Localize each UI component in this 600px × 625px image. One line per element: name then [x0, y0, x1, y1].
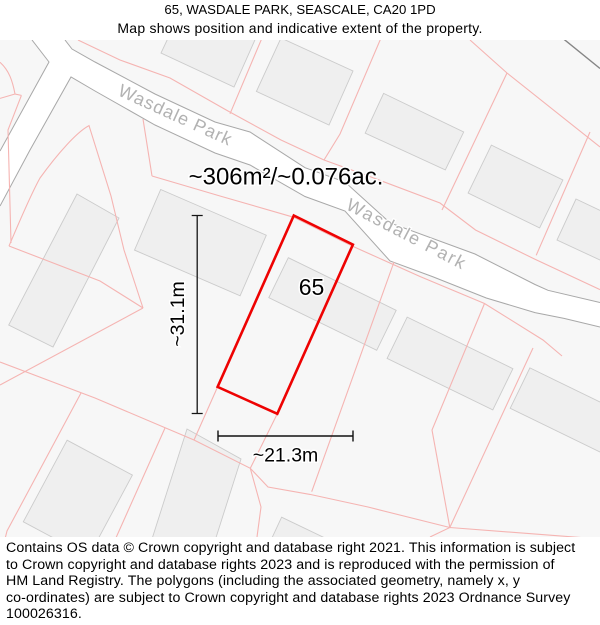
svg-text:~306m²/~0.076ac.: ~306m²/~0.076ac. [189, 164, 384, 191]
svg-text:~31.1m: ~31.1m [167, 281, 189, 347]
svg-text:65: 65 [299, 274, 325, 300]
svg-text:~21.3m: ~21.3m [253, 445, 319, 467]
